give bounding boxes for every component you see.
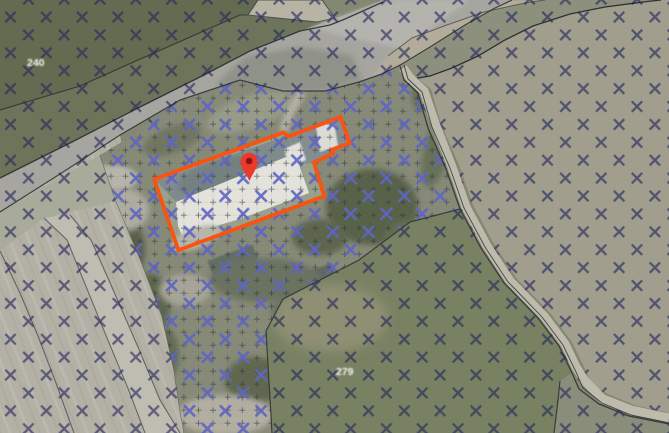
svg-text:240: 240 [27,57,45,69]
svg-text:279: 279 [336,366,354,378]
